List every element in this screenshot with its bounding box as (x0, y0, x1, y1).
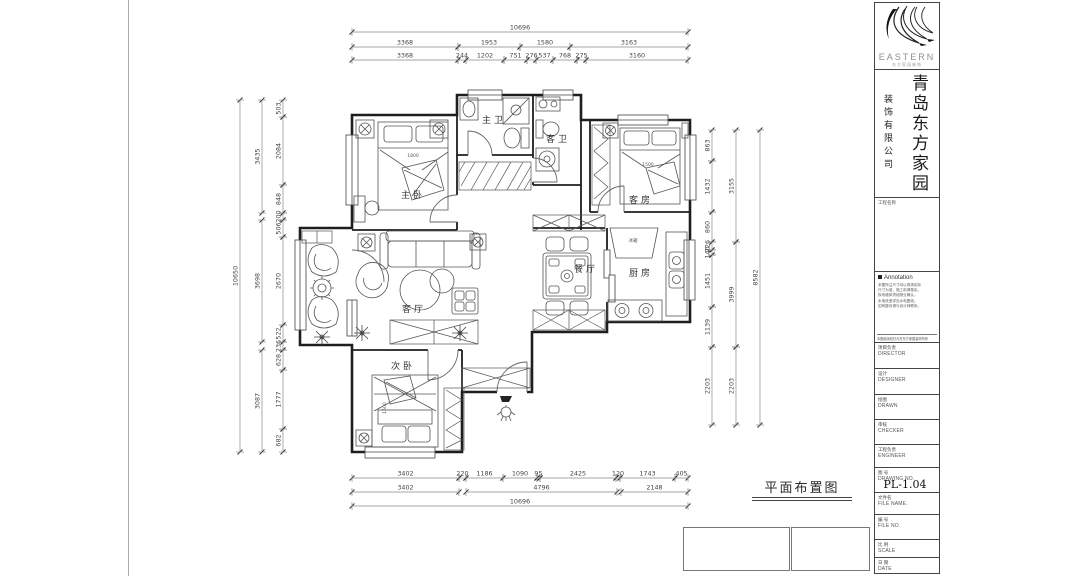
dim-label: 8582 (752, 269, 760, 285)
dim-label: 3698 (254, 273, 262, 289)
dim-chain-top-row1: 10696 (350, 24, 691, 37)
title-block-rows: 项目负责DIRECTOR设计DESIGNER绘图DRAWN审核CHECKER工程… (875, 343, 939, 577)
guest-bath-fixtures (536, 97, 560, 171)
dim-label: 405 (675, 470, 687, 478)
dim-label: 3160 (629, 52, 645, 60)
dim-label: 2203 (704, 378, 712, 394)
field-row-drawn: 绘图DRAWN (875, 395, 939, 420)
dim-label: 3999 (728, 286, 736, 302)
dim-label: 3402 (397, 470, 413, 478)
dim-label: 3155 (728, 178, 736, 194)
field-row-engineer: 工程负责ENGINEER (875, 445, 939, 468)
dim-label: 1432 (704, 178, 712, 194)
title-block: EASTERN 东方家园装饰 青岛东方家园 装饰有限公司 工程名称 Annota… (874, 2, 940, 574)
dim-label: 3402 (397, 484, 413, 492)
dim-label: 682 (275, 434, 283, 446)
revision-box-left (683, 527, 790, 571)
dim-label: 2084 (275, 143, 283, 159)
dim-label: 1202 (477, 52, 493, 60)
dim-label: 2670 (275, 273, 283, 289)
master-bed (354, 120, 448, 222)
dim-chain-right-inner: 8631432860226140145111392203 (704, 128, 717, 428)
dim-label: 3163 (621, 39, 637, 47)
annotation-section: Annotation 本图所注尺寸均以现场实际尺寸为准，施工前请核实。拆改墙体须… (875, 272, 939, 343)
company-name-primary: 青岛东方家园 (912, 74, 929, 194)
dim-label: 768 (559, 52, 571, 60)
company-section: 青岛东方家园 装饰有限公司 (875, 70, 939, 198)
dim-label: 2425 (570, 470, 586, 478)
dim-label: 1580 (537, 39, 553, 47)
doors (352, 131, 624, 395)
dim-label: 3368 (397, 39, 413, 47)
dim-label: 848 (275, 193, 283, 205)
dim-label: 3435 (254, 148, 262, 164)
annotation-title: Annotation (875, 272, 939, 282)
revision-box-right (791, 527, 870, 571)
room-label-living-room: 客厅 (402, 303, 426, 315)
field-row-scale: 比 例SCALE (875, 540, 939, 558)
room-label-guest-room: 客房 (629, 194, 653, 206)
project-name-field: 工程名称 (875, 198, 939, 272)
dining-furniture (543, 237, 591, 315)
dim-chain-bottom-row3: 10696 (350, 498, 691, 511)
logo-section: EASTERN 东方家园装饰 (875, 3, 939, 70)
dim-label: 863 (704, 139, 712, 151)
room-label-kitchen: 厨房 (629, 267, 653, 279)
field-row-designer: 设计DESIGNER (875, 369, 939, 395)
dim-label: 1777 (275, 391, 283, 407)
balcony-furniture (308, 245, 338, 329)
project-name-label: 工程名称 (875, 198, 939, 206)
dim-label: 537 (538, 52, 550, 60)
dim-label: 1953 (481, 39, 497, 47)
annotation-notes: 本图所注尺寸均以现场实际尺寸为准，施工前请核实。拆改墙体须经物业确认。水电改造详… (875, 282, 939, 309)
dim-label: 2148 (646, 484, 662, 492)
plan-title: 平面布置图 (752, 477, 852, 501)
dim-label: 751 (509, 52, 521, 60)
field-label-en: DESIGNER (878, 377, 939, 384)
field-value: PL-1.04 (875, 478, 935, 491)
dim-chain-bottom-row2: 340247962148 (350, 484, 691, 497)
plan-title-text: 平面布置图 (764, 481, 839, 496)
dim-label: 1139 (704, 319, 712, 335)
field-label-en: FILE NO. (878, 523, 939, 530)
brand-name: EASTERN (875, 53, 939, 62)
dim-label: 200 (275, 210, 283, 222)
dim-chain-left-outer: 10650 (232, 98, 245, 455)
field-label-en: DRAWN (878, 403, 939, 410)
plan-title-underline (752, 497, 852, 501)
furniture-label-guest-bed: 1500 (642, 162, 654, 168)
dim-label: 220 (456, 470, 468, 478)
field-row-file-name: 文件名FILE NAME. (875, 493, 939, 515)
dim-label: 1451 (704, 273, 712, 289)
bullet-square-icon (878, 275, 882, 279)
entry-marker-icon (497, 396, 515, 421)
field-row-date: 日 期DATE (875, 558, 939, 577)
furniture-label-master-bed: 1800 (407, 153, 419, 159)
dim-label: 3368 (397, 52, 413, 60)
dim-label: 522 (275, 327, 283, 339)
room-label-dining-room: 餐厅 (574, 263, 598, 275)
room-label-second-bedroom: 次卧 (391, 360, 415, 372)
field-label-en: FILE NAME. (878, 501, 939, 508)
brand-subtitle: 东方家园装饰 (875, 62, 939, 68)
field-label-en: DATE (878, 566, 939, 573)
dim-label: 4796 (533, 484, 549, 492)
room-label-guest-bath: 客卫 (546, 133, 570, 145)
dim-chain-left-inner: 503208484820050626705222366281777682 (275, 98, 288, 455)
dim-label: 10650 (232, 266, 240, 286)
dim-label: 1186 (476, 470, 492, 478)
dim-chain-bottom-row1: 3402220118610909524251201743405 (350, 470, 691, 483)
furniture-label-second-bed: 1500 (382, 402, 388, 414)
dim-label: 3087 (254, 393, 262, 409)
dim-label: 10696 (510, 498, 530, 506)
field-label-en: ENGINEER (878, 453, 939, 460)
dim-chain-top-row3: 336824412027512765377682753160 (350, 52, 691, 65)
dim-label: 10696 (510, 24, 530, 32)
field-row-file-no: 编 号FILE NO. (875, 515, 939, 540)
annotation-footer: 本图纸版权归青岛东方家园装饰所有 (877, 334, 937, 341)
eastern-logo-icon (875, 3, 939, 47)
dim-chain-left-mid: 343536983087 (254, 98, 267, 455)
dim-label: 503 (275, 102, 283, 114)
room-label-master-bedroom: 主卧 (401, 189, 425, 201)
dim-chain-top-row2: 3368195315803163 (350, 39, 691, 52)
dim-chain-right-mid: 315539992203 (728, 128, 741, 428)
field-row-checker: 审核CHECKER (875, 420, 939, 445)
field-label-en: SCALE (878, 548, 939, 555)
dim-label: 2203 (728, 378, 736, 394)
dim-label: 628 (275, 354, 283, 366)
floor-plan: 主卧主卫客卫客房客厅餐厅厨房次卧180015001500冰箱 106963368… (0, 0, 872, 576)
field-row-director: 项目负责DIRECTOR (875, 343, 939, 369)
second-bedroom-bed (356, 375, 438, 447)
dim-label: 1090 (512, 470, 528, 478)
room-label-master-bath: 主卫 (482, 114, 506, 126)
drawing-sheet: 主卧主卫客卫客房客厅餐厅厨房次卧180015001500冰箱 106963368… (0, 0, 1074, 576)
dim-label: 1743 (639, 470, 655, 478)
field-row-drawing-no: 图 号DRAWING NO.PL-1.04 (875, 468, 939, 493)
dim-label: 506 (275, 222, 283, 234)
company-name-secondary: 装饰有限公司 (884, 94, 893, 172)
living-room-furniture (356, 231, 486, 314)
field-label-en: CHECKER (878, 428, 939, 435)
field-label-en: DIRECTOR (878, 351, 939, 358)
dim-label: 860 (704, 221, 712, 233)
furniture-label-fridge: 冰箱 (629, 237, 638, 244)
dim-chain-right-outer: 8582 (752, 128, 765, 428)
